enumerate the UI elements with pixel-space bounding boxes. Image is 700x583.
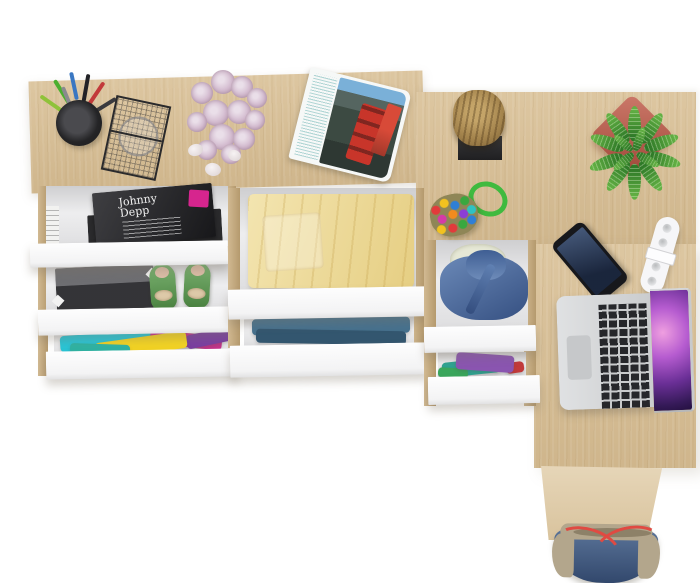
green-shoe-right: [183, 261, 211, 308]
storage-box: [55, 263, 155, 312]
rose: [247, 88, 267, 108]
drawer-front: [38, 306, 234, 335]
drawer-front: [428, 375, 540, 405]
towel-fold: [262, 212, 324, 272]
tote-bag: [553, 523, 658, 583]
laptop-trackpad: [566, 335, 592, 380]
magazine-cover-lines: [122, 216, 181, 239]
magazine-cover: Johnny Depp: [92, 183, 216, 247]
bead-charm: [430, 186, 526, 242]
clip-hole: [646, 276, 657, 287]
laptop-body: [556, 293, 654, 410]
magazine-badge: [188, 190, 209, 208]
drawer-front: [30, 240, 228, 267]
magazine-spine: [46, 206, 59, 246]
drawer-front: [424, 325, 536, 353]
laptop: [556, 286, 692, 415]
laptop-keyboard: [598, 303, 650, 409]
wooden-log: [453, 90, 505, 146]
yellow-towel: [248, 194, 414, 288]
potted-plant: [584, 84, 684, 190]
drawer-front: [230, 342, 431, 377]
green-shoe-left: [148, 263, 177, 311]
drawer-front: [46, 348, 238, 379]
drawer-front: [228, 286, 426, 319]
drawer-rail: [228, 188, 240, 348]
laptop-screen: [650, 288, 695, 413]
clip-hole: [662, 223, 673, 234]
magazine-title: Johnny Depp: [118, 189, 184, 219]
pencil-cup: [56, 100, 102, 146]
rose: [187, 112, 207, 132]
clip-hole: [657, 237, 668, 248]
rose: [245, 110, 265, 130]
clip-hole: [651, 261, 662, 272]
clip-hinge: [645, 246, 677, 266]
scene-desk-top-view: Johnny Depp: [0, 0, 700, 583]
